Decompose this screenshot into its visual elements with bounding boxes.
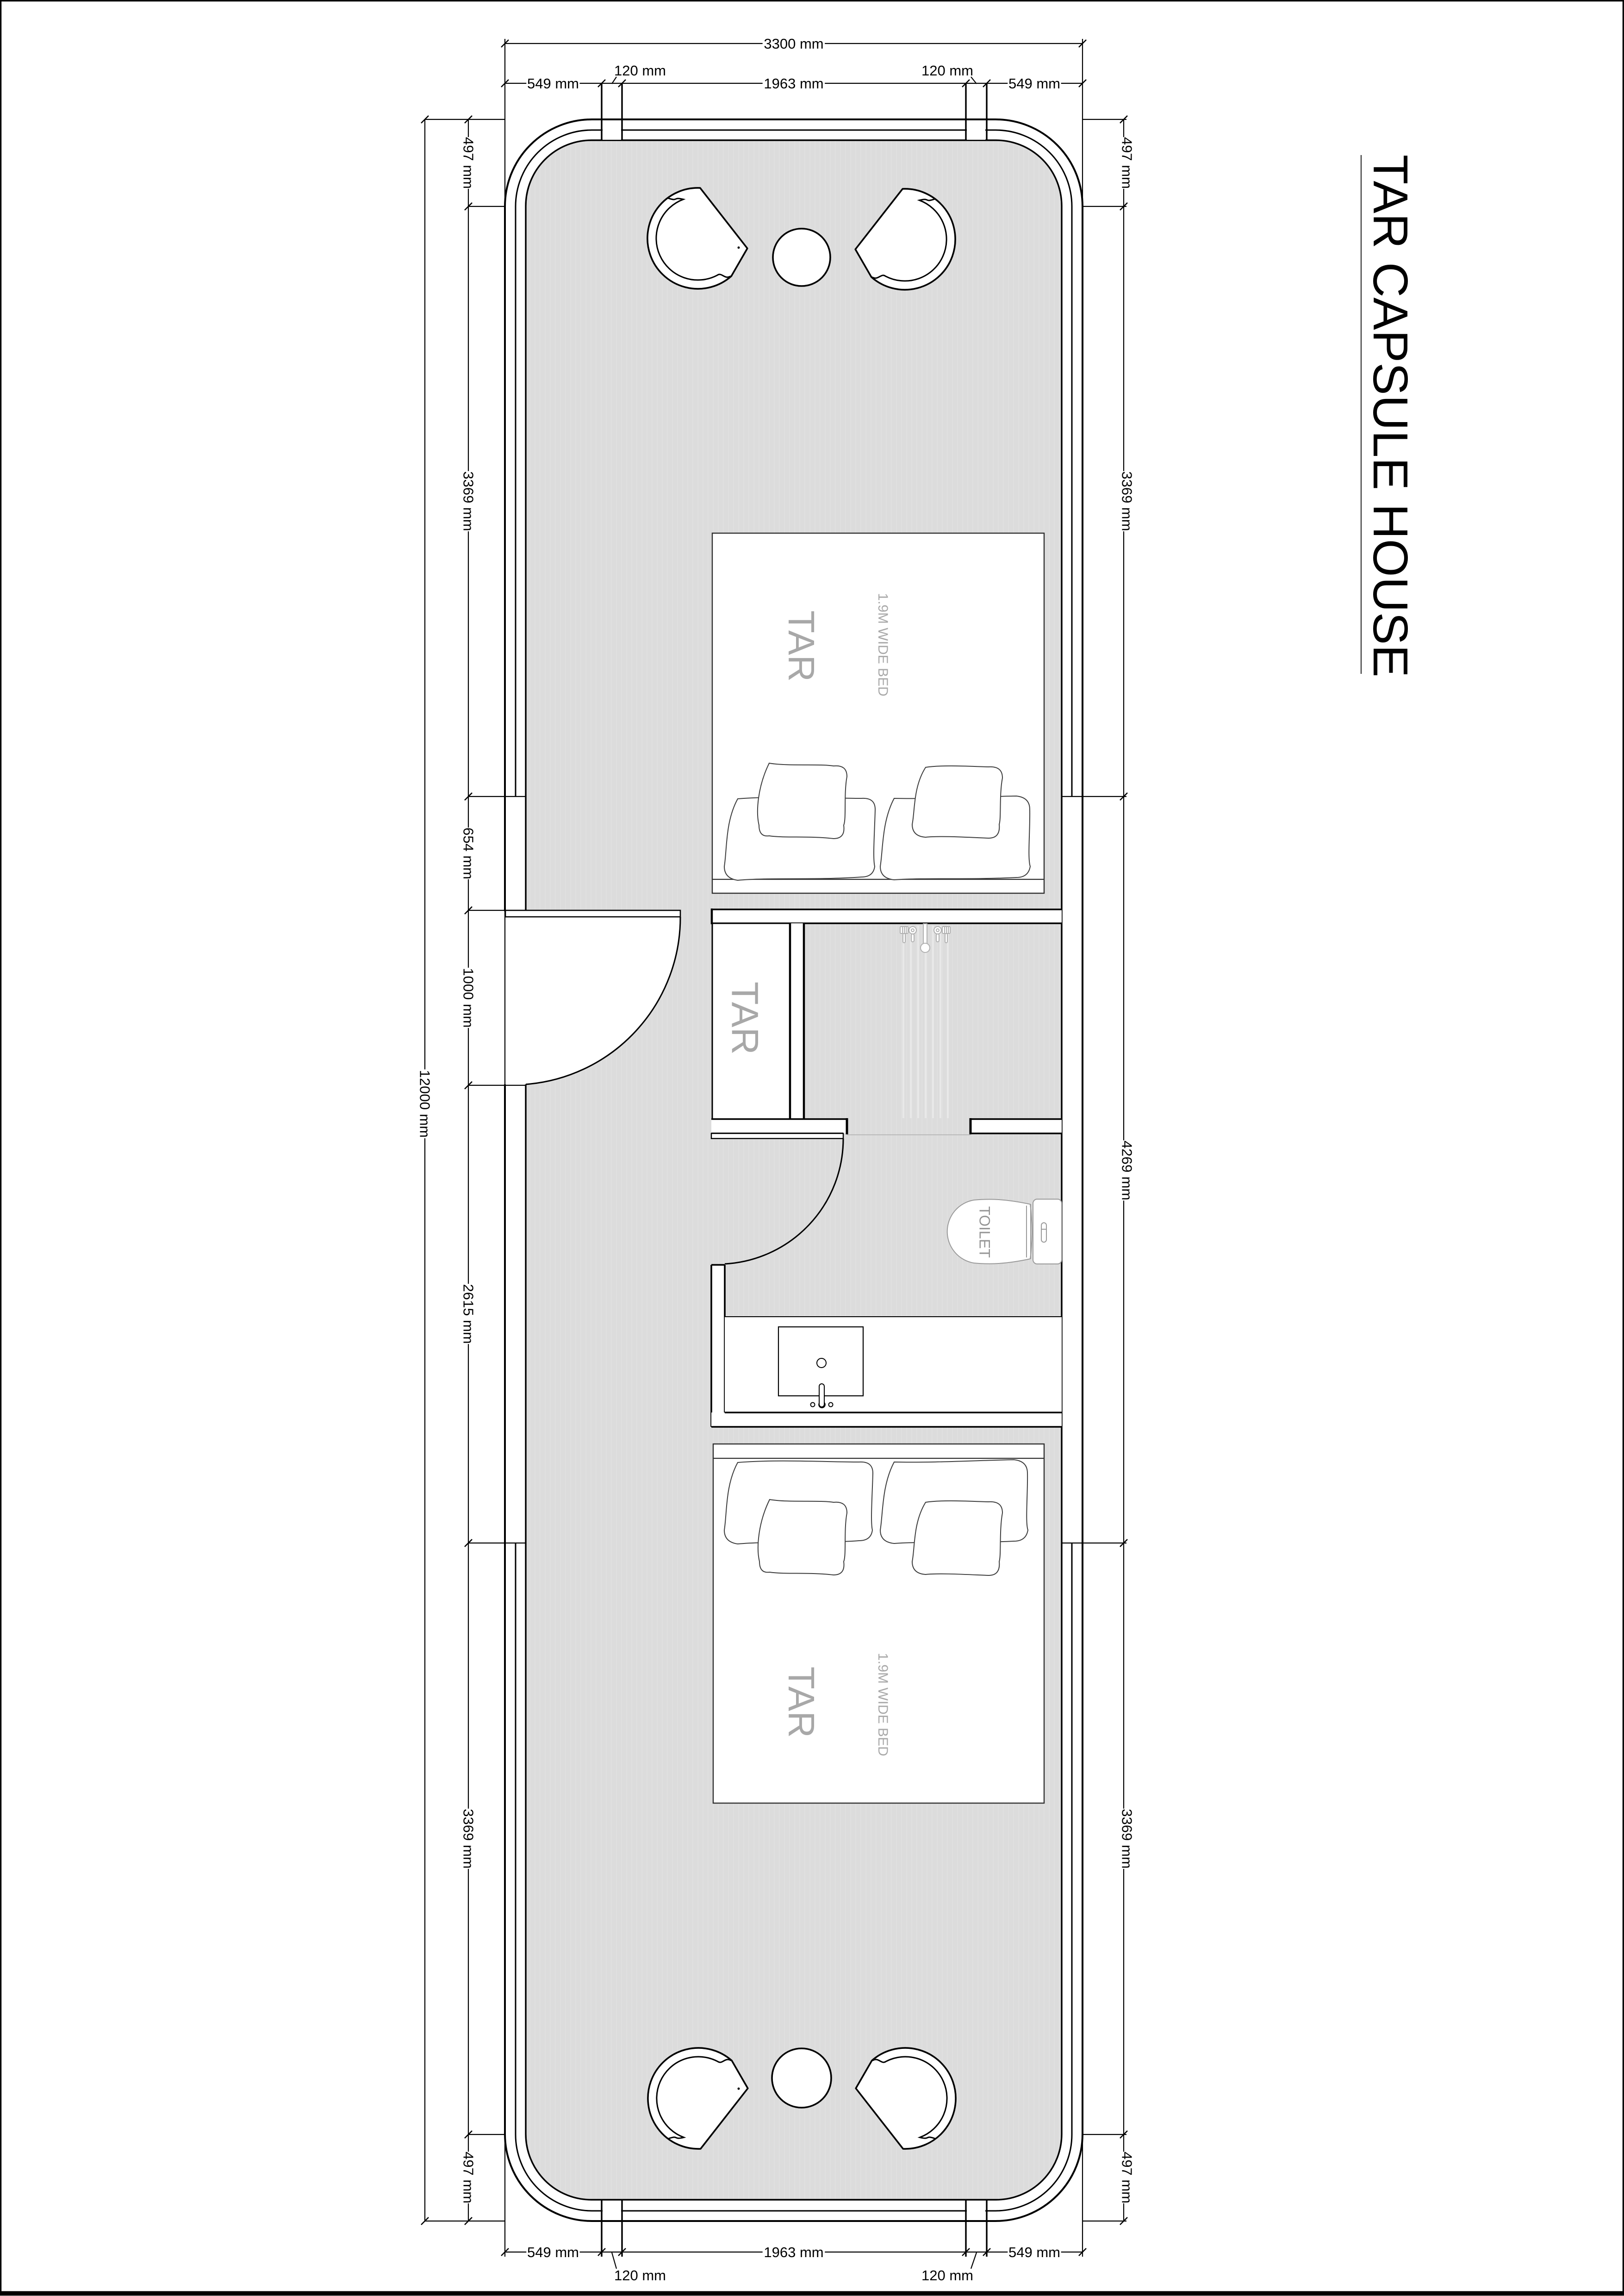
svg-text:3369 mm: 3369 mm xyxy=(460,1809,476,1868)
svg-text:497 mm: 497 mm xyxy=(1119,2152,1135,2203)
svg-text:549 mm: 549 mm xyxy=(1008,75,1060,92)
svg-text:1.9M WIDE BED: 1.9M WIDE BED xyxy=(875,593,890,696)
svg-text:120 mm: 120 mm xyxy=(614,2267,666,2284)
svg-text:120 mm: 120 mm xyxy=(921,2267,973,2284)
svg-text:654 mm: 654 mm xyxy=(460,828,476,879)
svg-text:549 mm: 549 mm xyxy=(527,2244,579,2260)
svg-text:TAR: TAR xyxy=(781,1667,822,1738)
svg-text:TAR CAPSULE HOUSE: TAR CAPSULE HOUSE xyxy=(1363,155,1418,678)
svg-text:120 mm: 120 mm xyxy=(614,62,666,79)
svg-text:TOILET: TOILET xyxy=(977,1206,993,1257)
svg-text:3369 mm: 3369 mm xyxy=(460,471,476,531)
svg-text:12000 mm: 12000 mm xyxy=(417,1070,433,1138)
svg-text:497 mm: 497 mm xyxy=(1119,137,1135,189)
svg-text:1963 mm: 1963 mm xyxy=(764,75,823,92)
svg-text:549 mm: 549 mm xyxy=(527,75,579,92)
svg-text:3369 mm: 3369 mm xyxy=(1119,1809,1135,1868)
svg-text:549 mm: 549 mm xyxy=(1008,2244,1060,2260)
svg-text:120 mm: 120 mm xyxy=(921,62,973,79)
svg-text:1.9M WIDE BED: 1.9M WIDE BED xyxy=(875,1653,890,1756)
svg-text:1000 mm: 1000 mm xyxy=(460,968,476,1027)
svg-text:TAR: TAR xyxy=(781,610,822,682)
svg-text:TAR: TAR xyxy=(724,982,766,1055)
svg-text:4269 mm: 4269 mm xyxy=(1119,1140,1135,1200)
svg-text:497 mm: 497 mm xyxy=(460,2152,476,2203)
svg-text:497 mm: 497 mm xyxy=(460,137,476,189)
svg-text:1963 mm: 1963 mm xyxy=(764,2244,823,2260)
svg-text:3369 mm: 3369 mm xyxy=(1119,471,1135,531)
svg-text:3300 mm: 3300 mm xyxy=(764,36,823,52)
svg-text:2615 mm: 2615 mm xyxy=(460,1284,476,1344)
